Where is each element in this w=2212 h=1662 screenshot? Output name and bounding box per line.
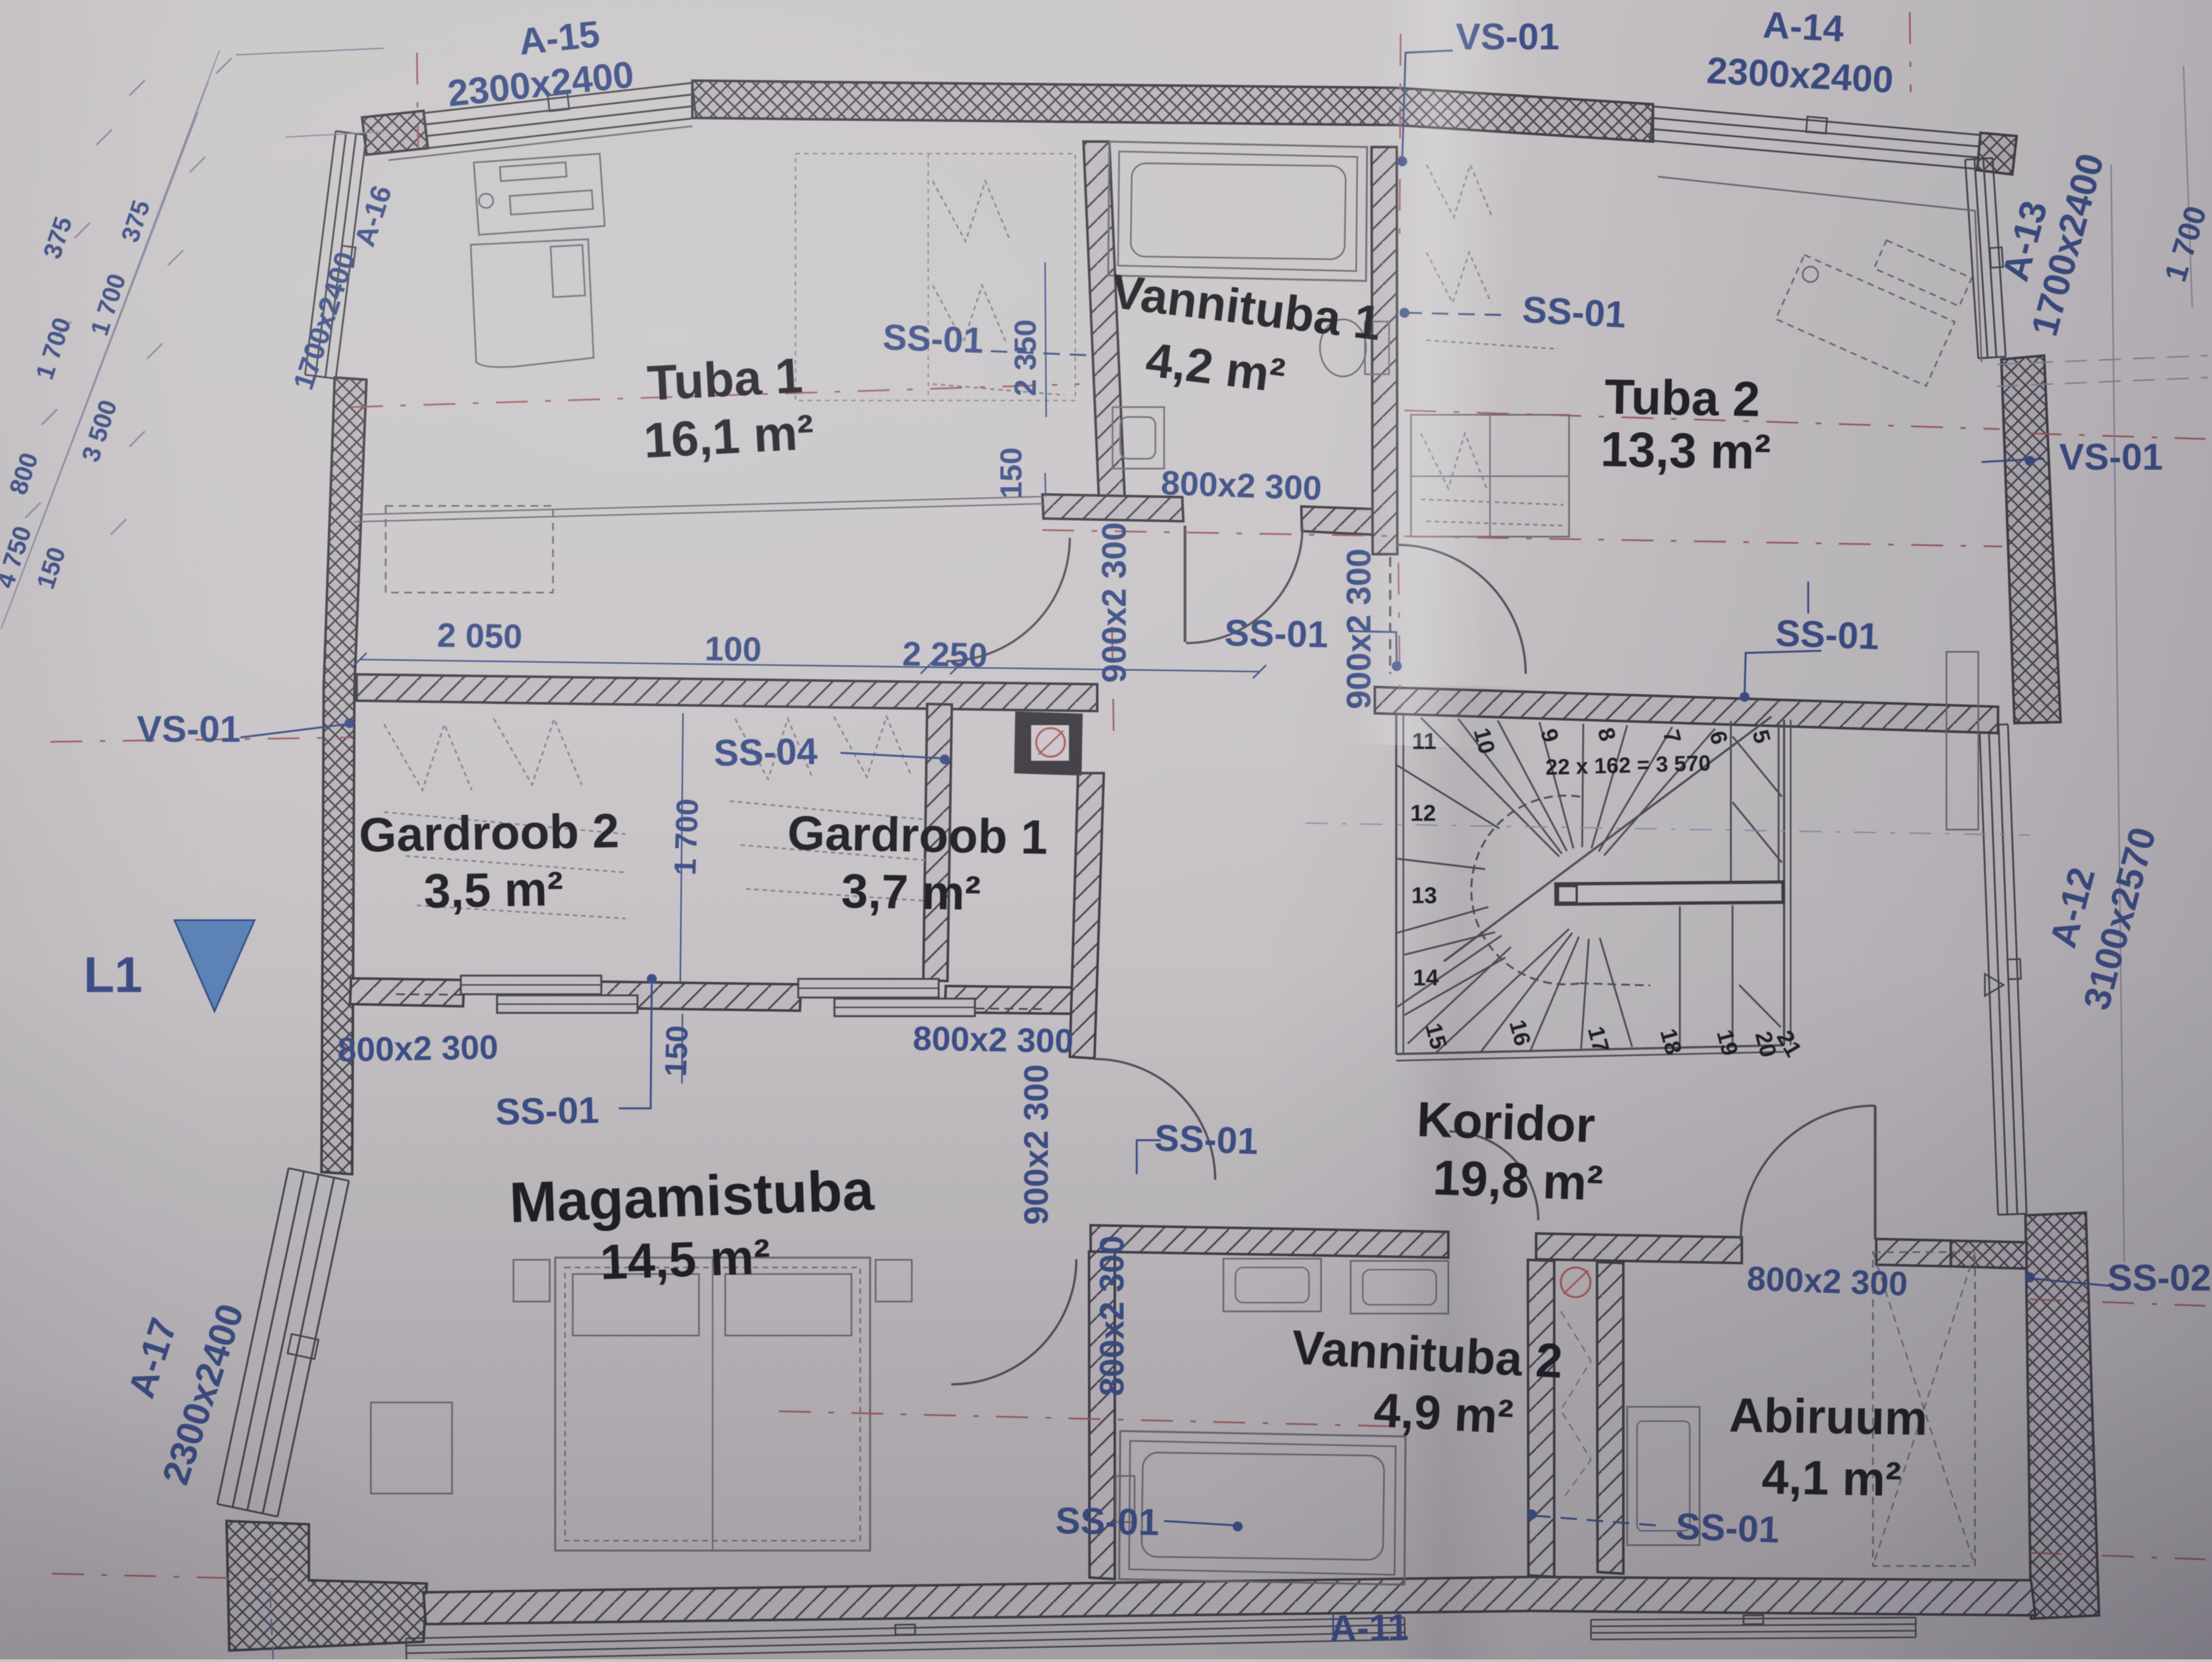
- svg-text:13: 13: [1412, 882, 1437, 908]
- svg-text:SS-01: SS-01: [1055, 1500, 1159, 1543]
- svg-text:22 x 162 = 3 570: 22 x 162 = 3 570: [1545, 751, 1711, 780]
- svg-text:14,5 m²: 14,5 m²: [599, 1230, 771, 1291]
- svg-text:3,7 m²: 3,7 m²: [841, 864, 981, 920]
- svg-text:1 700: 1 700: [30, 314, 76, 383]
- svg-text:800x2 300: 800x2 300: [912, 1019, 1074, 1060]
- svg-text:SS-01: SS-01: [1675, 1506, 1780, 1551]
- svg-text:A-17: A-17: [120, 1313, 185, 1403]
- svg-text:1 700: 1 700: [2158, 202, 2212, 285]
- svg-text:10: 10: [1469, 725, 1500, 757]
- svg-text:A-15: A-15: [517, 13, 602, 63]
- svg-text:VS-01: VS-01: [2059, 436, 2163, 478]
- svg-text:12: 12: [1410, 800, 1436, 826]
- svg-text:3 500: 3 500: [76, 396, 122, 465]
- svg-text:900x2 300: 900x2 300: [1018, 1064, 1056, 1225]
- svg-text:4,9 m²: 4,9 m²: [1373, 1382, 1515, 1444]
- svg-text:VS-01: VS-01: [1456, 16, 1560, 58]
- svg-text:Magamistuba: Magamistuba: [509, 1158, 876, 1235]
- svg-text:2 350: 2 350: [1008, 319, 1042, 396]
- svg-text:Koridor: Koridor: [1416, 1092, 1596, 1153]
- svg-text:11: 11: [1412, 728, 1436, 754]
- svg-text:2300x2400: 2300x2400: [445, 54, 635, 115]
- svg-text:18: 18: [1655, 1026, 1686, 1057]
- svg-text:5: 5: [1747, 727, 1775, 746]
- svg-text:800x2 300: 800x2 300: [337, 1028, 499, 1069]
- svg-text:100: 100: [704, 630, 762, 669]
- svg-text:150: 150: [31, 544, 71, 593]
- svg-text:800x2 300: 800x2 300: [1746, 1260, 1908, 1303]
- svg-text:SS-01: SS-01: [495, 1089, 599, 1133]
- svg-text:15: 15: [1420, 1021, 1452, 1052]
- svg-text:16: 16: [1504, 1017, 1536, 1049]
- svg-text:SS-01: SS-01: [882, 317, 984, 360]
- svg-text:2 050: 2 050: [437, 617, 522, 656]
- svg-text:19,8 m²: 19,8 m²: [1432, 1151, 1604, 1212]
- svg-text:800: 800: [3, 449, 43, 498]
- svg-text:Tuba 2: Tuba 2: [1604, 370, 1760, 427]
- svg-text:150: 150: [994, 447, 1028, 498]
- svg-text:9: 9: [1536, 726, 1564, 745]
- svg-text:SS-01: SS-01: [1224, 612, 1328, 655]
- svg-text:2 250: 2 250: [902, 635, 988, 675]
- svg-text:900x2 300: 900x2 300: [1096, 522, 1133, 683]
- svg-text:6: 6: [1705, 728, 1733, 747]
- svg-text:8: 8: [1593, 725, 1621, 744]
- svg-text:375: 375: [37, 213, 77, 262]
- svg-text:1700x2400: 1700x2400: [287, 248, 362, 393]
- svg-text:Gardroob 2: Gardroob 2: [358, 803, 619, 862]
- svg-text:800x2 300: 800x2 300: [1093, 1235, 1131, 1396]
- svg-text:800x2 300: 800x2 300: [1160, 464, 1322, 508]
- svg-text:L1: L1: [83, 947, 142, 1003]
- svg-text:SS-01: SS-01: [1521, 289, 1627, 336]
- svg-text:A-16: A-16: [349, 182, 398, 250]
- svg-text:SS-01: SS-01: [1154, 1117, 1259, 1163]
- svg-text:VS-01: VS-01: [137, 708, 241, 750]
- svg-text:SS-01: SS-01: [1775, 612, 1880, 658]
- svg-text:Vannituba 2: Vannituba 2: [1290, 1320, 1564, 1388]
- svg-text:7: 7: [1658, 727, 1686, 746]
- svg-text:14: 14: [1413, 965, 1439, 990]
- svg-text:16,1 m²: 16,1 m²: [642, 405, 815, 469]
- svg-text:Abiruum: Abiruum: [1729, 1388, 1928, 1445]
- svg-text:A-11: A-11: [1329, 1607, 1409, 1649]
- svg-text:SS-04: SS-04: [713, 730, 817, 774]
- svg-text:2300x2400: 2300x2400: [1706, 49, 1894, 101]
- svg-text:900x2 300: 900x2 300: [1340, 548, 1378, 709]
- svg-text:150: 150: [658, 1025, 694, 1078]
- svg-text:Gardroob 1: Gardroob 1: [787, 805, 1048, 864]
- svg-text:A-14: A-14: [1762, 4, 1845, 50]
- svg-text:21: 21: [1772, 1026, 1807, 1061]
- svg-text:1 700: 1 700: [668, 798, 705, 876]
- svg-text:13,3 m²: 13,3 m²: [1600, 422, 1771, 480]
- svg-text:SS-02: SS-02: [2108, 1257, 2211, 1299]
- svg-text:Tuba 1: Tuba 1: [646, 348, 804, 412]
- svg-text:4,1 m²: 4,1 m²: [1762, 1450, 1902, 1506]
- svg-text:3,5 m²: 3,5 m²: [423, 861, 563, 918]
- svg-text:4,2 m²: 4,2 m²: [1143, 332, 1288, 403]
